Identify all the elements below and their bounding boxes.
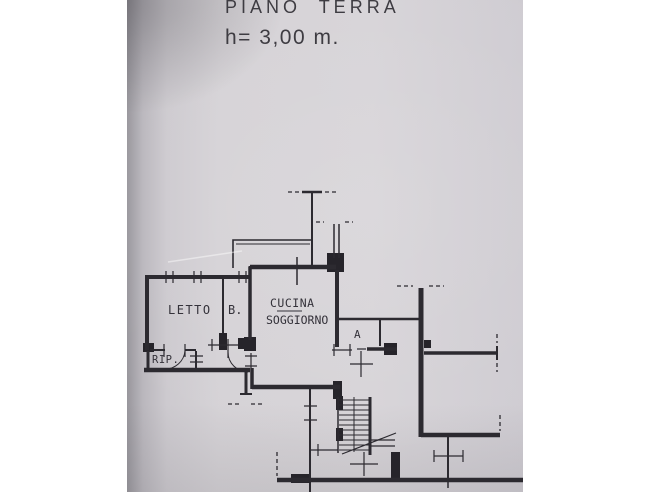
floor-plan-drawing: LETTO B. CUCINA SOGGIORNO A RIP. <box>0 0 648 492</box>
room-label-bagno: B. <box>228 303 242 317</box>
window-door-ticks <box>164 257 463 476</box>
room-label-cucina: CUCINA <box>270 296 315 310</box>
paper-scratch <box>168 251 242 262</box>
room-label-soggiorno: SOGGIORNO <box>266 313 328 327</box>
room-label-letto: LETTO <box>168 303 212 317</box>
scanned-floor-plan-photo: PIANO TERRA h= 3,00 m. <box>0 0 648 492</box>
room-label-ripostiglio: RIP. <box>152 354 179 366</box>
room-label-ingresso-a: A <box>354 328 361 341</box>
interior-walls <box>150 192 497 492</box>
exterior-walls <box>144 266 523 480</box>
